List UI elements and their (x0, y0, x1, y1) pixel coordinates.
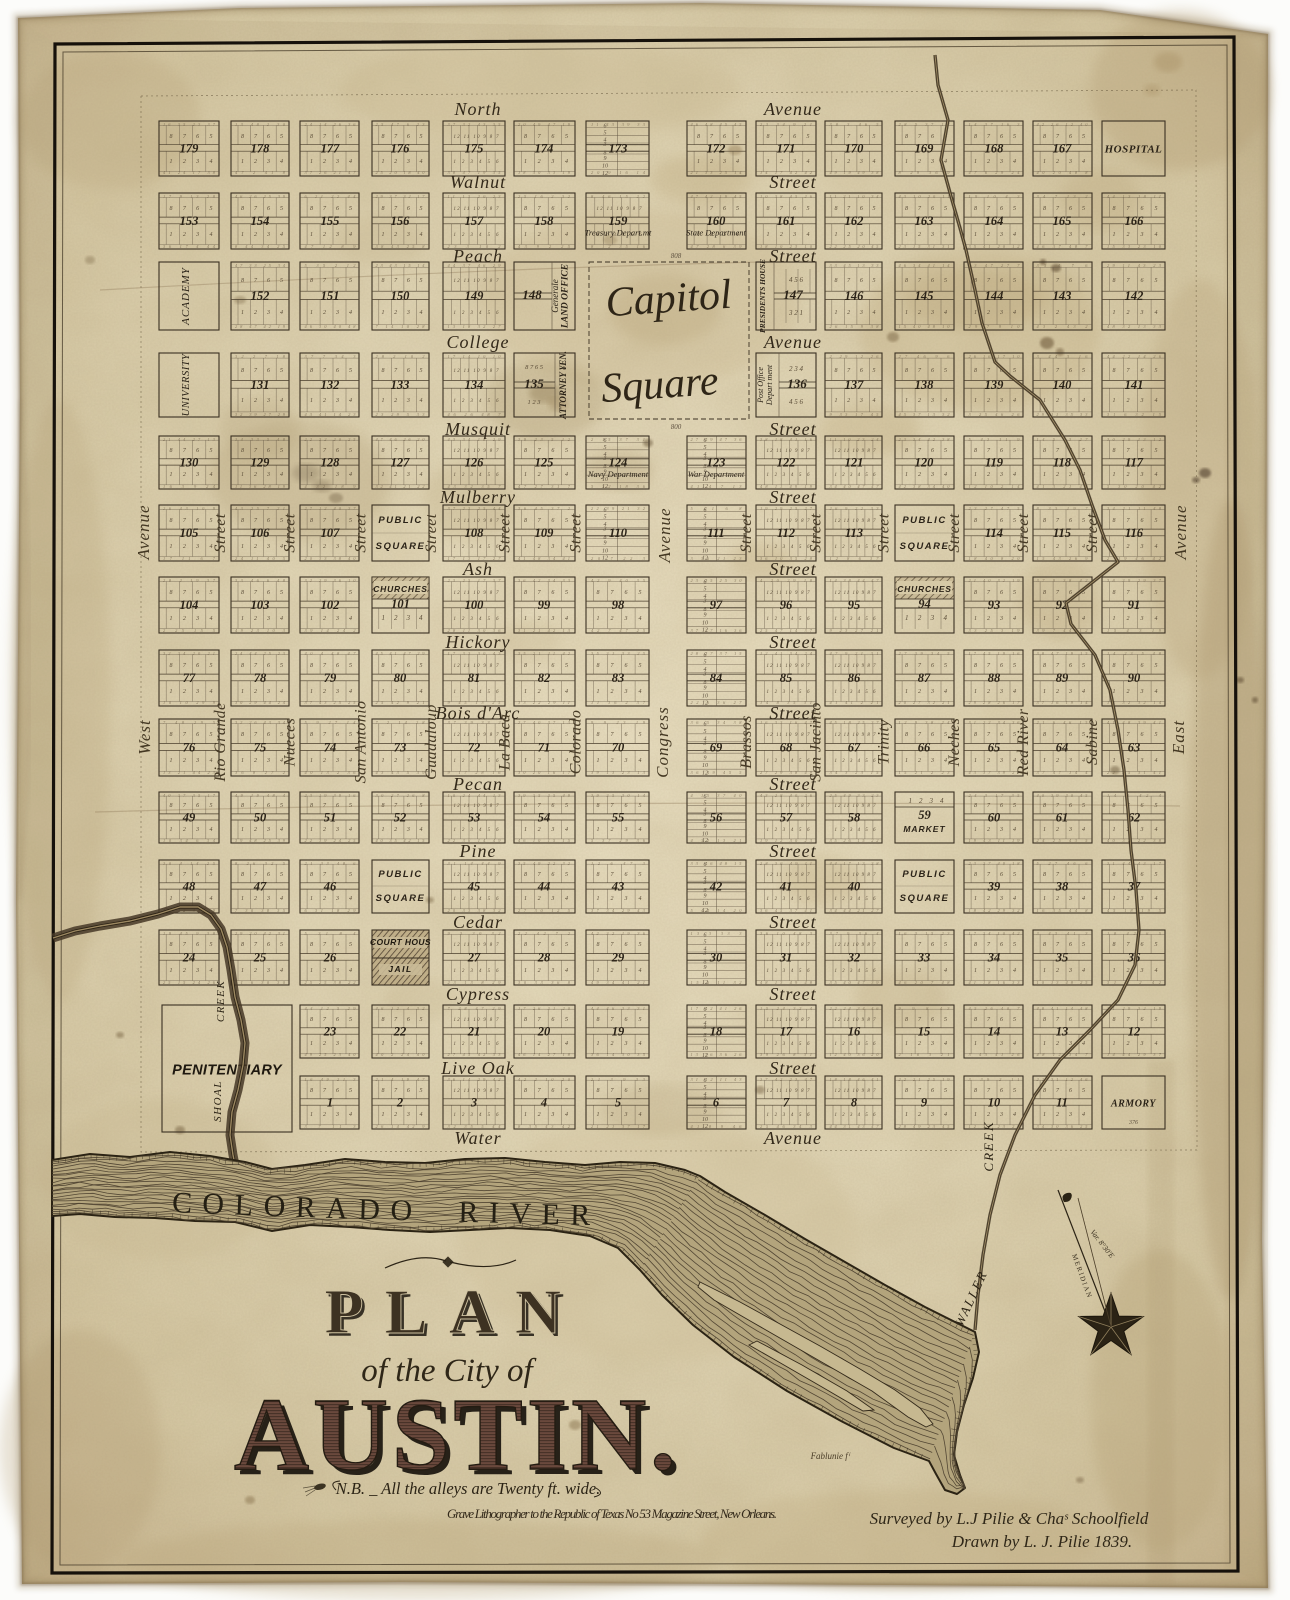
svg-text:101: 101 (391, 597, 410, 611)
svg-text:63: 63 (1128, 740, 1141, 754)
svg-text:59: 59 (918, 808, 931, 822)
svg-text:ATTORNEY ¥EN.: ATTORNEY ¥EN. (558, 351, 568, 420)
svg-text:43: 43 (611, 880, 625, 894)
svg-text:27: 27 (467, 951, 481, 965)
svg-text:MARKET: MARKET (903, 824, 945, 834)
svg-text:San Jacinto: San Jacinto (808, 702, 825, 782)
svg-text:172: 172 (707, 141, 726, 155)
svg-text:Surveyed by L.J Pilie & Chaˢ S: Surveyed by L.J Pilie & Chaˢ Schoolfield (870, 1509, 1149, 1528)
svg-text:9: 9 (704, 1039, 707, 1045)
svg-text:117: 117 (1125, 456, 1144, 470)
svg-text:20: 20 (537, 1025, 551, 1039)
svg-text:9: 9 (704, 965, 707, 971)
svg-text:Guadaloup: Guadaloup (423, 704, 440, 780)
svg-text:Avenue: Avenue (655, 507, 674, 563)
svg-text:17 9 13 28: 17 9 13 28 (163, 194, 216, 199)
svg-text:Street: Street (212, 513, 229, 552)
svg-text:HOSPITAL: HOSPITAL (1104, 144, 1163, 156)
svg-text:Street: Street (1015, 513, 1032, 552)
svg-text:ARMORY: ARMORY (1110, 1099, 1156, 1110)
svg-text:3 2 1: 3 2 1 (788, 309, 803, 317)
svg-text:5: 5 (704, 1085, 707, 1091)
svg-text:PUBLIC: PUBLIC (902, 869, 946, 880)
svg-text:Avenue: Avenue (1171, 504, 1190, 560)
svg-text:7: 7 (783, 1096, 790, 1110)
svg-text:28 5 37 13: 28 5 37 13 (899, 122, 951, 127)
svg-text:34: 34 (987, 951, 1001, 965)
svg-text:10: 10 (702, 1117, 708, 1123)
svg-text:12 11 10 9 8 7: 12 11 10 9 8 7 (835, 873, 877, 878)
svg-text:115: 115 (1053, 526, 1071, 540)
svg-text:106: 106 (251, 526, 271, 540)
svg-text:12 11 10 9 8 7: 12 11 10 9 8 7 (835, 664, 877, 669)
svg-text:18 42 6 5: 18 42 6 5 (1107, 931, 1162, 936)
svg-text:155: 155 (321, 214, 340, 228)
svg-text:9: 9 (704, 1110, 707, 1116)
svg-text:105: 105 (180, 526, 199, 540)
svg-text:5: 5 (704, 1014, 707, 1020)
svg-text:Avenue: Avenue (763, 332, 822, 352)
svg-text:13: 13 (1056, 1025, 1069, 1039)
svg-text:Street: Street (946, 513, 963, 552)
svg-text:Street: Street (497, 513, 514, 552)
svg-text:123: 123 (707, 456, 726, 470)
svg-text:32: 32 (847, 951, 861, 965)
svg-text:10: 10 (602, 164, 608, 170)
svg-text:12 11 10 9 8 7: 12 11 10 9 8 7 (835, 733, 877, 738)
svg-text:47 12 8 9: 47 12 8 9 (305, 244, 357, 249)
svg-text:3: 3 (703, 672, 707, 678)
svg-text:114: 114 (985, 526, 1003, 540)
svg-text:91: 91 (1128, 598, 1141, 612)
svg-text:22: 22 (393, 1025, 407, 1039)
svg-text:PUBLIC: PUBLIC (378, 869, 422, 880)
svg-text:140: 140 (1053, 378, 1073, 392)
svg-text:San Antonio: San Antonio (353, 701, 370, 784)
svg-text:3: 3 (703, 527, 707, 533)
svg-text:146: 146 (845, 289, 865, 303)
svg-text:87: 87 (918, 671, 931, 685)
svg-text:173: 173 (609, 141, 628, 155)
svg-text:5: 5 (604, 131, 607, 137)
svg-text:157: 157 (465, 214, 485, 228)
svg-text:Avenue: Avenue (763, 99, 822, 119)
svg-text:10: 10 (702, 901, 708, 907)
svg-text:Trinity: Trinity (876, 719, 893, 765)
svg-text:12 11 10 9 8 7: 12 11 10 9 8 7 (835, 449, 877, 454)
svg-text:12 11 10 9 8 7: 12 11 10 9 8 7 (835, 1018, 877, 1023)
svg-text:56: 56 (710, 811, 723, 825)
svg-text:119: 119 (985, 456, 1004, 470)
svg-text:3 39 2 11: 3 39 2 11 (969, 1077, 1020, 1082)
svg-text:3: 3 (703, 951, 707, 957)
svg-text:9: 9 (921, 1096, 928, 1110)
svg-text:116: 116 (1125, 526, 1144, 540)
svg-text:97: 97 (710, 598, 723, 612)
svg-text:36 5 34 38: 36 5 34 38 (691, 720, 743, 725)
svg-text:24: 24 (182, 951, 196, 965)
svg-text:9: 9 (704, 824, 707, 830)
svg-text:12 6 47 3: 12 6 47 3 (591, 861, 646, 866)
svg-text:153: 153 (180, 214, 199, 228)
svg-text:PRESIDENTS HOUSE: PRESIDENTS HOUSE (758, 259, 767, 333)
svg-text:UNIVERSITY: UNIVERSITY (181, 353, 192, 416)
svg-text:Musquit: Musquit (444, 419, 511, 439)
svg-text:PENITENTIARY: PENITENTIARY (172, 1063, 283, 1079)
svg-text:Hickory: Hickory (445, 632, 511, 652)
svg-text:N: N (515, 1276, 561, 1347)
svg-text:Red River: Red River (1015, 708, 1032, 776)
svg-text:129: 129 (251, 456, 271, 470)
svg-text:AUSTIN.: AUSTIN. (234, 1377, 676, 1492)
svg-text:161: 161 (777, 214, 796, 228)
svg-text:12 11 10 9 8 7: 12 11 10 9 8 7 (835, 591, 877, 596)
svg-text:808: 808 (671, 252, 682, 260)
svg-text:150: 150 (391, 289, 411, 303)
svg-text:34 7 13 2: 34 7 13 2 (1037, 194, 1089, 199)
svg-text:84: 84 (710, 671, 723, 685)
svg-text:SQUARE: SQUARE (376, 893, 426, 904)
svg-text:99: 99 (538, 598, 551, 612)
svg-text:141: 141 (1125, 378, 1144, 392)
svg-text:77: 77 (183, 671, 196, 685)
svg-text:9: 9 (704, 686, 707, 692)
svg-text:96: 96 (780, 598, 793, 612)
svg-text:17: 17 (780, 1025, 793, 1039)
svg-text:112: 112 (777, 526, 795, 540)
svg-text:131: 131 (251, 378, 270, 392)
svg-text:55: 55 (612, 811, 625, 825)
svg-text:12 8 6 37: 12 8 6 37 (830, 556, 880, 561)
svg-text:Capitol: Capitol (604, 272, 733, 327)
svg-text:3: 3 (703, 811, 707, 817)
svg-text:9: 9 (704, 541, 707, 547)
svg-text:147: 147 (783, 287, 803, 302)
svg-text:45: 45 (467, 880, 481, 894)
svg-text:102: 102 (321, 598, 340, 612)
svg-text:126: 126 (465, 456, 485, 470)
svg-text:61: 61 (1056, 811, 1069, 825)
svg-text:Pine: Pine (459, 841, 497, 861)
svg-text:15 4 3 19: 15 4 3 19 (1107, 628, 1162, 633)
svg-text:A: A (449, 1276, 495, 1347)
svg-text:Congress: Congress (653, 706, 672, 778)
svg-text:16: 16 (848, 1025, 861, 1039)
svg-text:47 2 41 8: 47 2 41 8 (235, 170, 286, 175)
svg-text:Street: Street (769, 1058, 816, 1078)
svg-text:25: 25 (253, 951, 267, 965)
svg-text:Street: Street (876, 513, 893, 552)
svg-text:38 3 46 5: 38 3 46 5 (830, 122, 880, 127)
svg-text:41: 41 (779, 880, 793, 894)
svg-text:Street: Street (353, 513, 370, 552)
svg-text:133: 133 (391, 378, 410, 392)
svg-text:52: 52 (394, 811, 407, 825)
svg-text:111: 111 (707, 526, 724, 540)
svg-text:2: 2 (396, 1096, 403, 1110)
svg-text:16 3 9 24: 16 3 9 24 (163, 484, 216, 489)
svg-text:79: 79 (324, 671, 337, 685)
svg-text:ACADEMY: ACADEMY (180, 266, 192, 326)
svg-text:Mulberry: Mulberry (439, 487, 516, 507)
svg-text:53: 53 (468, 811, 481, 825)
svg-text:14: 14 (988, 1025, 1001, 1039)
svg-text:132: 132 (321, 378, 340, 392)
svg-text:139: 139 (985, 378, 1005, 392)
svg-text:43 2 43 2: 43 2 43 2 (1037, 324, 1089, 329)
svg-text:144: 144 (985, 289, 1004, 303)
svg-text:159: 159 (609, 214, 629, 228)
svg-text:148: 148 (522, 287, 542, 302)
svg-text:5: 5 (604, 515, 607, 521)
svg-text:West: West (135, 719, 154, 755)
svg-text:33: 33 (917, 951, 931, 965)
svg-text:Street: Street (769, 487, 816, 507)
svg-text:130: 130 (180, 456, 200, 470)
svg-text:Street: Street (423, 513, 440, 552)
svg-text:12 9 38 24: 12 9 38 24 (899, 720, 951, 725)
svg-text:15: 15 (918, 1025, 931, 1039)
svg-text:78: 78 (254, 671, 267, 685)
svg-text:95: 95 (848, 598, 861, 612)
svg-text:109: 109 (535, 526, 555, 540)
svg-text:30 4 14 25: 30 4 14 25 (163, 861, 216, 866)
svg-text:Street: Street (769, 419, 816, 439)
svg-text:26: 26 (323, 951, 337, 965)
svg-text:PUBLIC: PUBLIC (902, 515, 946, 526)
svg-text:28 2 19 37: 28 2 19 37 (163, 578, 216, 583)
svg-text:24 3 17 35: 24 3 17 35 (969, 793, 1021, 798)
svg-text:Cedar: Cedar (453, 912, 503, 932)
svg-text:142: 142 (1125, 289, 1144, 303)
svg-text:14 8 42 4: 14 8 42 4 (1107, 793, 1162, 798)
svg-text:10: 10 (702, 693, 708, 699)
svg-text:175: 175 (465, 141, 484, 155)
svg-text:SQUARE: SQUARE (900, 893, 950, 904)
svg-text:Cypress: Cypress (446, 984, 510, 1004)
svg-text:43 9 2 25: 43 9 2 25 (518, 244, 571, 249)
svg-text:Avenue: Avenue (763, 1128, 822, 1148)
svg-text:65: 65 (988, 740, 1001, 754)
svg-text:3: 3 (703, 1096, 707, 1102)
svg-text:10: 10 (988, 1096, 1001, 1110)
svg-text:5: 5 (704, 940, 707, 946)
svg-text:113: 113 (845, 526, 863, 540)
svg-text:12 11 10 9 8 7: 12 11 10 9 8 7 (835, 1089, 877, 1094)
svg-text:170: 170 (845, 141, 865, 155)
svg-text:5: 5 (704, 587, 707, 593)
svg-text:4 5 6: 4 5 6 (789, 398, 804, 406)
svg-text:89: 89 (1056, 671, 1069, 685)
svg-text:Water: Water (454, 1128, 501, 1148)
svg-text:16 3 15 23: 16 3 15 23 (899, 931, 951, 936)
svg-text:40 2 24 40: 40 2 24 40 (376, 1052, 426, 1057)
svg-text:CHURCHES: CHURCHES (897, 584, 952, 594)
svg-text:70: 70 (612, 740, 625, 754)
svg-text:Fablunie fⁱ: Fablunie fⁱ (810, 1451, 851, 1461)
svg-text:9: 9 (704, 613, 707, 619)
svg-text:167: 167 (1053, 141, 1073, 155)
svg-text:40 4 48 47: 40 4 48 47 (305, 651, 357, 656)
svg-text:North: North (453, 99, 501, 119)
svg-text:12 11 10 9 8 7: 12 11 10 9 8 7 (835, 519, 877, 524)
svg-text:143: 143 (1053, 289, 1072, 303)
svg-text:10: 10 (702, 973, 708, 979)
svg-text:9: 9 (604, 156, 607, 162)
svg-text:31: 31 (779, 951, 793, 965)
svg-text:124: 124 (609, 456, 628, 470)
svg-text:10: 10 (702, 831, 708, 837)
svg-text:103: 103 (251, 598, 270, 612)
svg-text:23: 23 (323, 1025, 337, 1039)
svg-text:Peach: Peach (452, 246, 503, 266)
svg-text:Street: Street (738, 513, 755, 552)
svg-text:Post Office: Post Office (756, 367, 765, 404)
svg-text:Pecan: Pecan (452, 774, 503, 794)
svg-text:3: 3 (703, 880, 707, 886)
svg-text:31 4 2 42: 31 4 2 42 (1107, 980, 1162, 985)
svg-text:98: 98 (612, 598, 625, 612)
svg-text:10: 10 (702, 763, 708, 769)
svg-text:CREEK: CREEK (981, 1120, 996, 1171)
svg-text:176: 176 (391, 141, 411, 155)
svg-text:CREEK: CREEK (215, 980, 227, 1022)
svg-text:Drawn by L. J. Pilie 1839.: Drawn by L. J. Pilie 1839. (951, 1532, 1132, 1551)
svg-text:51: 51 (324, 811, 337, 825)
svg-text:Navy Department: Navy Department (587, 469, 649, 479)
svg-text:156: 156 (391, 214, 411, 228)
svg-text:74: 74 (324, 740, 337, 754)
svg-text:32 2 7 18: 32 2 7 18 (235, 354, 286, 359)
svg-text:137: 137 (845, 378, 865, 392)
svg-text:40: 40 (847, 880, 861, 894)
svg-text:49: 49 (182, 811, 196, 825)
svg-text:20 7 22 3: 20 7 22 3 (591, 556, 646, 561)
svg-text:5: 5 (704, 729, 707, 735)
svg-text:28: 28 (537, 951, 551, 965)
svg-text:Grave Lithographer to the Repu: Grave Lithographer to the Republic of Te… (447, 1506, 777, 1521)
svg-text:East: East (1169, 720, 1188, 756)
svg-text:50: 50 (254, 811, 267, 825)
svg-text:54: 54 (538, 811, 551, 825)
svg-text:5: 5 (704, 801, 707, 807)
svg-text:57: 57 (780, 811, 793, 825)
svg-text:122: 122 (777, 456, 796, 470)
svg-text:29 7 9 10: 29 7 9 10 (969, 324, 1021, 329)
svg-text:21 4 19 47: 21 4 19 47 (376, 1077, 426, 1082)
svg-text:6: 6 (713, 1096, 720, 1110)
svg-text:30: 30 (709, 951, 723, 965)
svg-text:22 42 7 2: 22 42 7 2 (518, 931, 571, 936)
svg-text:1: 1 (327, 1096, 333, 1110)
svg-text:5: 5 (704, 445, 707, 451)
svg-text:Treasury Depart.mt: Treasury Depart.mt (585, 227, 652, 237)
svg-text:136: 136 (787, 376, 807, 391)
svg-text:68: 68 (780, 740, 793, 754)
svg-text:17 11 6 7: 17 11 6 7 (163, 556, 216, 561)
svg-text:138: 138 (915, 378, 935, 392)
svg-text:37 9 36 4: 37 9 36 4 (830, 931, 880, 936)
svg-text:75: 75 (254, 740, 267, 754)
svg-text:3: 3 (603, 527, 607, 533)
svg-text:171: 171 (777, 141, 796, 155)
svg-text:Generale: Generale (550, 279, 560, 313)
svg-text:88: 88 (988, 671, 1001, 685)
svg-text:162: 162 (845, 214, 864, 228)
svg-text:39: 39 (987, 880, 1001, 894)
svg-text:Street: Street (808, 513, 825, 552)
svg-text:64: 64 (1056, 740, 1069, 754)
svg-text:JAIL: JAIL (388, 964, 412, 974)
svg-text:9: 9 (704, 894, 707, 900)
svg-text:120: 120 (915, 456, 935, 470)
svg-text:Rio Grande: Rio Grande (212, 702, 229, 782)
svg-text:73: 73 (394, 740, 407, 754)
svg-text:Nueces: Nueces (282, 718, 299, 768)
svg-text:34 3 23 15: 34 3 23 15 (830, 770, 880, 775)
svg-text:L: L (385, 1276, 428, 1347)
svg-text:3: 3 (470, 1096, 477, 1110)
svg-text:Street: Street (568, 513, 585, 552)
svg-text:13 3 33 3: 13 3 33 3 (691, 931, 743, 936)
svg-text:18: 18 (710, 1025, 723, 1039)
svg-text:41 4 7 13: 41 4 7 13 (691, 484, 743, 489)
svg-text:47: 47 (253, 880, 267, 894)
svg-text:135: 135 (524, 376, 544, 391)
svg-text:Street: Street (769, 172, 816, 192)
svg-text:71: 71 (538, 740, 551, 754)
svg-text:107: 107 (321, 526, 341, 540)
svg-text:37 9 38 42: 37 9 38 42 (1037, 578, 1089, 583)
svg-text:Street: Street (769, 246, 816, 266)
svg-text:94: 94 (918, 597, 931, 611)
svg-text:10: 10 (702, 620, 708, 626)
svg-text:41 3 21 40: 41 3 21 40 (1037, 484, 1089, 489)
svg-text:169: 169 (915, 141, 935, 155)
svg-text:Street: Street (282, 513, 299, 552)
svg-text:4: 4 (540, 1096, 547, 1110)
svg-text:Avenue: Avenue (134, 504, 153, 560)
svg-text:179: 179 (180, 141, 200, 155)
svg-text:9: 9 (704, 755, 707, 761)
svg-text:81: 81 (468, 671, 481, 685)
svg-text:72: 72 (468, 740, 481, 754)
svg-text:SQUARE: SQUARE (376, 541, 426, 552)
svg-text:80: 80 (394, 671, 407, 685)
svg-text:8: 8 (851, 1096, 858, 1110)
svg-text:376: 376 (1128, 1120, 1138, 1126)
svg-text:N.B. _ All the alleys are Twen: N.B. _ All the alleys are Twenty ft. wid… (335, 1479, 601, 1498)
svg-text:9: 9 (604, 541, 607, 547)
svg-text:Sabine: Sabine (1084, 719, 1101, 765)
svg-text:90: 90 (1128, 671, 1141, 685)
svg-text:3: 3 (703, 1025, 707, 1031)
svg-text:177: 177 (321, 141, 341, 155)
svg-text:178: 178 (251, 141, 271, 155)
svg-text:154: 154 (251, 214, 270, 228)
svg-text:3: 3 (703, 741, 707, 747)
svg-text:4 5 6: 4 5 6 (789, 276, 804, 284)
svg-text:86: 86 (848, 671, 861, 685)
svg-text:SQUARE: SQUARE (900, 541, 950, 552)
svg-text:28 2 10 2: 28 2 10 2 (376, 354, 426, 359)
svg-text:State Department: State Department (686, 227, 746, 237)
svg-text:Depart ment: Depart ment (765, 364, 774, 406)
svg-text:Brassos: Brassos (738, 715, 755, 768)
svg-text:21 6 46 15: 21 6 46 15 (1037, 720, 1089, 725)
svg-text:76: 76 (183, 740, 196, 754)
svg-text:12 11 10 9 8 7: 12 11 10 9 8 7 (835, 804, 877, 809)
